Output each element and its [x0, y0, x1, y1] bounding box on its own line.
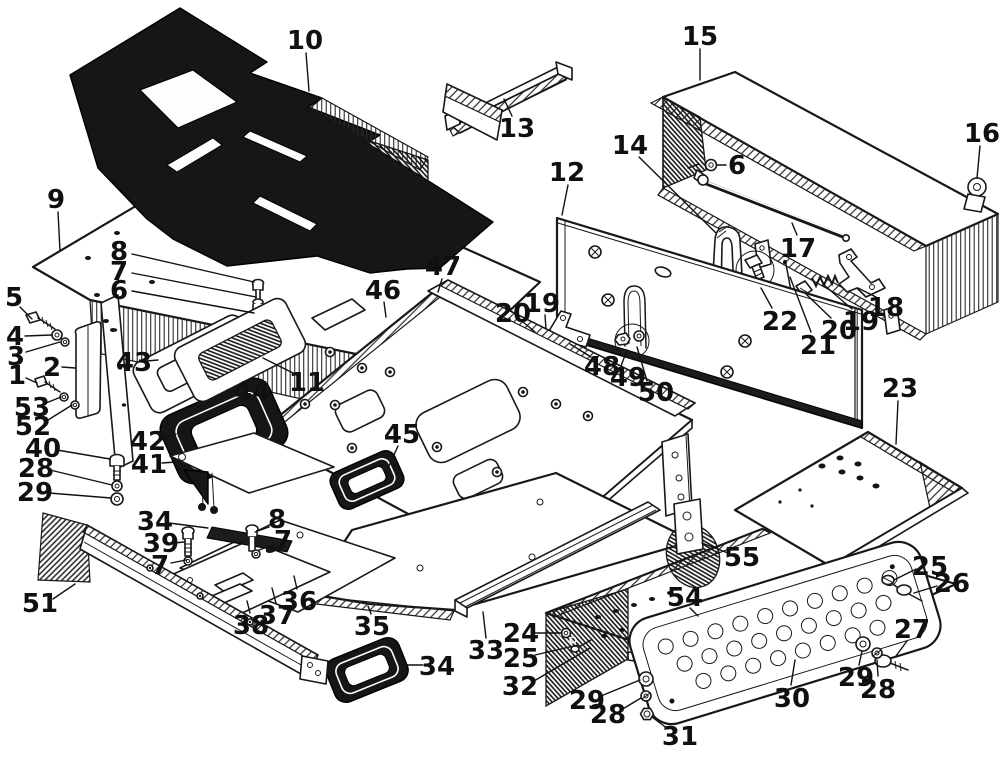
callout-41: 41 — [131, 450, 167, 480]
callout-2: 2 — [43, 353, 61, 383]
callout-17: 17 — [780, 234, 816, 264]
callout-29: 29 — [17, 478, 53, 508]
callout-23: 23 — [882, 374, 918, 404]
callout-15: 15 — [682, 22, 718, 52]
diagram-canvas: 1098765432153524344114241402829474645131… — [0, 0, 1000, 760]
part-washer-4 — [52, 330, 62, 340]
part-washer-3 — [61, 338, 69, 346]
callout-9: 9 — [47, 185, 65, 215]
callout-51: 51 — [22, 589, 58, 619]
callout-28: 28 — [860, 675, 896, 705]
callout-7: 7 — [274, 526, 292, 556]
part-washer-29-mid — [639, 672, 653, 686]
part-washer-29-left — [111, 493, 123, 505]
callout-18: 18 — [868, 293, 904, 323]
exploded-parts-diagram: 1098765432153524344114241402829474645131… — [0, 0, 1000, 760]
callout-19: 19 — [524, 289, 560, 319]
callout-36: 36 — [281, 587, 317, 617]
part-washer-7-lower — [252, 550, 260, 558]
callout-13: 13 — [499, 114, 535, 144]
callout-45: 45 — [384, 420, 420, 450]
callout-5: 5 — [5, 283, 23, 313]
part-washer-28-mid — [641, 691, 651, 701]
callout-10: 10 — [287, 26, 323, 56]
callout-22: 22 — [762, 307, 798, 337]
callout-30: 30 — [774, 684, 810, 714]
part-washer-7-left — [184, 557, 192, 565]
part-washer-28-left — [112, 481, 122, 491]
callout-34: 34 — [419, 652, 455, 682]
callout-6: 6 — [110, 276, 128, 306]
callout-35: 35 — [354, 612, 390, 642]
part-washer-24 — [562, 629, 571, 638]
callout-50: 50 — [638, 378, 674, 408]
part-nut-31 — [641, 708, 654, 719]
leader-line-4 — [25, 335, 52, 336]
callout-27: 27 — [894, 615, 930, 645]
callout-44: 44 — [234, 377, 270, 407]
callout-54: 54 — [667, 583, 703, 613]
callout-28: 28 — [590, 700, 626, 730]
part-washer-28-right — [872, 648, 882, 658]
callout-47: 47 — [425, 252, 461, 282]
callout-31: 31 — [662, 722, 698, 752]
leader-line-2 — [62, 367, 75, 368]
callout-33: 33 — [468, 636, 504, 666]
callout-14: 14 — [612, 131, 648, 161]
callout-25: 25 — [503, 644, 539, 674]
callout-1: 1 — [8, 361, 26, 391]
callout-16: 16 — [964, 119, 1000, 149]
callout-55: 55 — [724, 543, 760, 573]
callout-6: 6 — [728, 151, 746, 181]
callout-26: 26 — [934, 569, 970, 599]
callout-43: 43 — [116, 348, 152, 378]
part-washer-29-right — [856, 637, 870, 651]
callout-7: 7 — [151, 551, 169, 581]
callout-11: 11 — [289, 368, 325, 398]
leader-line-28 — [877, 660, 878, 676]
callout-12: 12 — [549, 158, 585, 188]
callout-32: 32 — [502, 672, 538, 702]
callout-46: 46 — [365, 276, 401, 306]
